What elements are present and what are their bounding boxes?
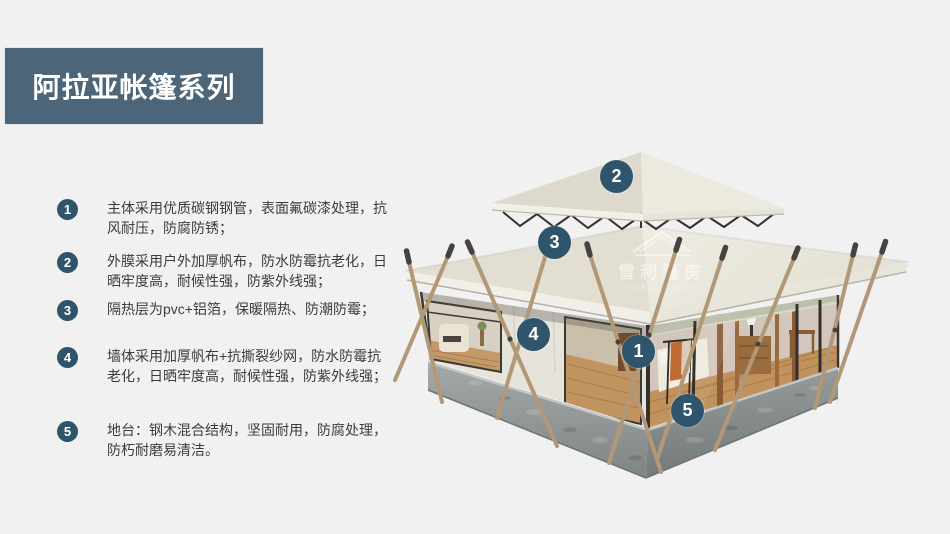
feature-number-badge: 3 xyxy=(57,300,78,321)
tent-render: 雪利篷房 YUELI TENT xyxy=(385,140,945,500)
tent-illustration: 雪利篷房 YUELI TENT xyxy=(385,140,945,500)
feature-number-badge: 1 xyxy=(57,199,78,220)
feature-item-3: 3 隔热层为pvc+铝箔，保暖隔热、防潮防霉； xyxy=(57,300,389,321)
feature-item-2: 2 外膜采用户外加厚帆布，防水防霉抗老化，日晒牢度高，耐候性强，防紫外线强； xyxy=(57,252,389,291)
feature-item-5: 5 地台：钢木混合结构，坚固耐用，防腐处理，防朽耐磨易清洁。 xyxy=(57,421,389,460)
feature-text: 墙体采用加厚帆布+抗撕裂纱网，防水防霉抗老化，日晒牢度高，耐候性强，防紫外线强； xyxy=(107,347,389,386)
tent-callout-badge-3: 3 xyxy=(538,226,571,259)
feature-text: 主体采用优质碳钢钢管，表面氟碳漆处理，抗风耐压，防腐防锈； xyxy=(107,199,389,238)
tent-callout-badge-5: 5 xyxy=(671,394,704,427)
tent-callout-badge-1: 1 xyxy=(622,335,655,368)
feature-item-4: 4 墙体采用加厚帆布+抗撕裂纱网，防水防霉抗老化，日晒牢度高，耐候性强，防紫外线… xyxy=(57,347,389,386)
feature-text: 地台：钢木混合结构，坚固耐用，防腐处理，防朽耐磨易清洁。 xyxy=(107,421,389,460)
feature-number-badge: 2 xyxy=(57,252,78,273)
feature-number-badge: 5 xyxy=(57,421,78,442)
slide-background: 阿拉亚帐篷系列 1 主体采用优质碳钢钢管，表面氟碳漆处理，抗风耐压，防腐防锈； … xyxy=(0,0,950,534)
series-title-banner: 阿拉亚帐篷系列 xyxy=(4,47,264,125)
tent-callout-badge-2: 2 xyxy=(600,160,633,193)
feature-item-1: 1 主体采用优质碳钢钢管，表面氟碳漆处理，抗风耐压，防腐防锈； xyxy=(57,199,389,238)
feature-text: 外膜采用户外加厚帆布，防水防霉抗老化，日晒牢度高，耐候性强，防紫外线强； xyxy=(107,252,389,291)
feature-text: 隔热层为pvc+铝箔，保暖隔热、防潮防霉； xyxy=(107,300,389,320)
series-title: 阿拉亚帐篷系列 xyxy=(32,66,235,106)
watermark-cn: 雪利篷房 xyxy=(618,262,706,282)
feature-number-badge: 4 xyxy=(57,347,78,368)
tent-top-roof xyxy=(492,152,784,221)
tent-callout-badge-4: 4 xyxy=(517,318,550,351)
